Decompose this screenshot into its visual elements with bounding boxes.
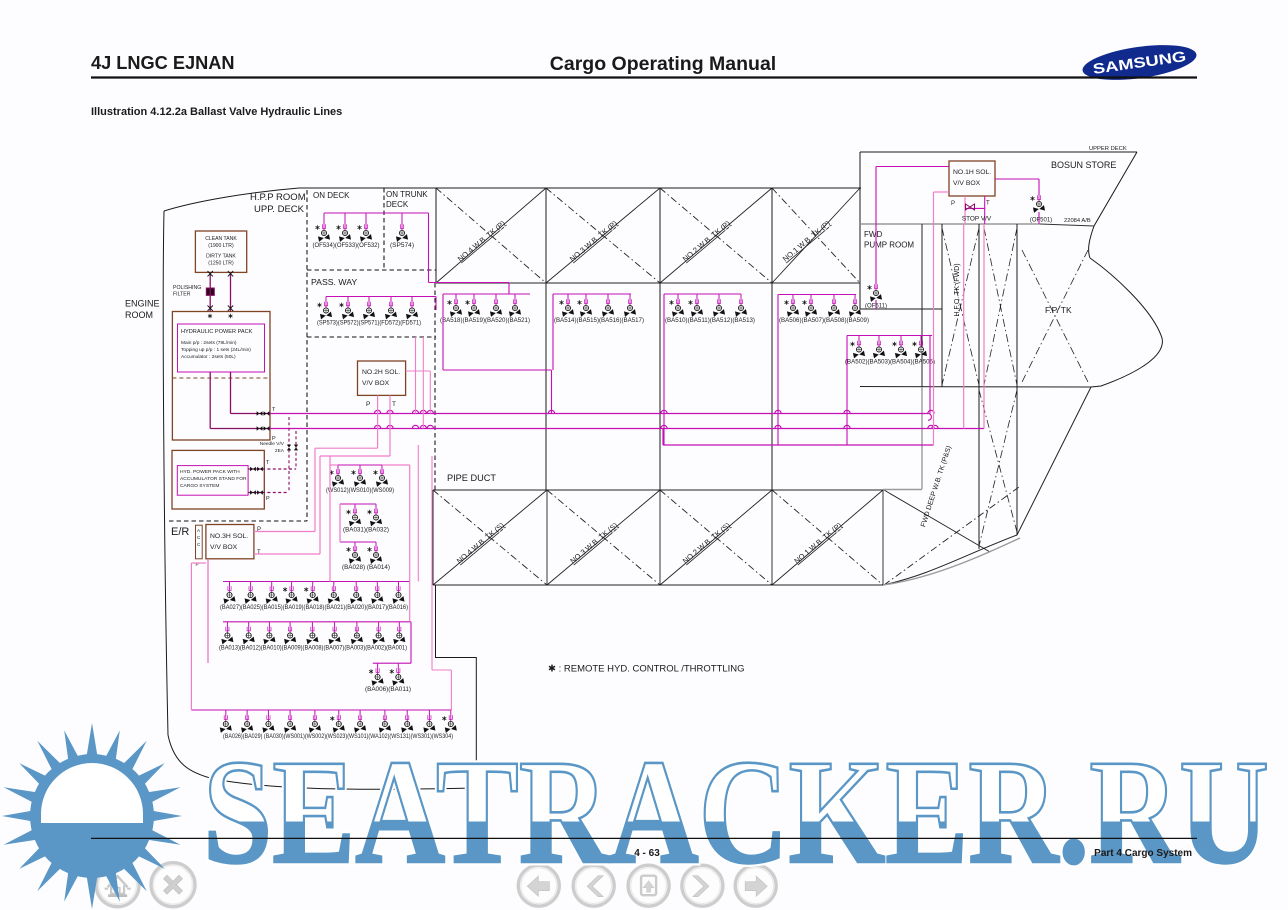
svg-text:22084 A/B: 22084 A/B [1064,218,1091,224]
svg-text:Accumulator : 2sets (50L): Accumulator : 2sets (50L) [181,354,236,360]
svg-text:STOP V/V: STOP V/V [962,216,992,223]
svg-text:DIRTY TANK: DIRTY TANK [206,254,236,260]
svg-text:(BA028) (BA014): (BA028) (BA014) [342,565,390,571]
svg-text:ON TRUNK: ON TRUNK [386,190,428,199]
svg-text:F.P. TK: F.P. TK [1045,305,1072,315]
svg-text:NO.1H SOL.: NO.1H SOL. [953,169,991,176]
svg-text:(WS012)(WS010)(WS009): (WS012)(WS010)(WS009) [326,488,394,494]
svg-text:CLEAN TANK: CLEAN TANK [205,236,237,242]
svg-text:ROOM: ROOM [125,310,153,320]
svg-text:T: T [392,401,396,408]
svg-text:PUMP ROOM: PUMP ROOM [864,241,914,250]
svg-text:(BA510)(BA511)(BA512)(BA513): (BA510)(BA511)(BA512)(BA513) [665,318,755,324]
svg-text:ENGINE: ENGINE [125,299,160,309]
svg-text:CARGO SYSTEM: CARGO SYSTEM [180,483,219,489]
svg-text:(BA502)(BA503)(BA504)(BA505): (BA502)(BA503)(BA504)(BA505) [845,360,935,366]
svg-text:UPP. DECK: UPP. DECK [254,204,305,215]
svg-text:FWD: FWD [864,230,882,239]
svg-text:PASS. WAY: PASS. WAY [311,277,357,287]
svg-text:(SP573)(SP572)(SP571)(FD572)(F: (SP573)(SP572)(SP571)(FD572)(FD571) [317,321,421,327]
svg-text:Illustration 4.12.2a Ballast V: Illustration 4.12.2a Ballast Valve Hydra… [91,106,342,118]
svg-text:BOSUN STORE: BOSUN STORE [1051,160,1116,170]
svg-text:Topping up p/p : 1 sets (24L/m: Topping up p/p : 1 sets (24L/min) [181,347,251,353]
svg-text:(OF501): (OF501) [1030,218,1052,224]
svg-text:(SP574): (SP574) [390,243,414,249]
svg-text:(1900 LTR): (1900 LTR) [208,243,234,249]
svg-text:V/V BOX: V/V BOX [210,544,238,551]
svg-text:P: P [366,401,370,408]
svg-text:V/V BOX: V/V BOX [362,380,390,387]
svg-text:PIPE DUCT: PIPE DUCT [447,473,496,483]
svg-text:UPPER DECK: UPPER DECK [1089,146,1127,152]
svg-text:(BA031)(BA032): (BA031)(BA032) [343,528,389,534]
svg-text:Cargo Operating Manual: Cargo Operating Manual [550,53,776,75]
svg-text:(BA027)(BA025)(BA015)(BA019)(B: (BA027)(BA025)(BA015)(BA019)(BA018)(BA02… [220,605,408,611]
svg-text:T: T [257,550,261,556]
svg-text:ON DECK: ON DECK [313,191,350,200]
svg-text:HYD. POWER PACK WITH: HYD. POWER PACK WITH [180,469,240,475]
svg-text:4J LNGC EJNAN: 4J LNGC EJNAN [91,53,235,73]
svg-text:(1250 LTR): (1250 LTR) [208,261,234,267]
svg-text:(OF534)(OF533)(OF532): (OF534)(OF533)(OF532) [313,243,380,249]
svg-text:✱ : REMOTE HYD. CONTROL /THROT: ✱ : REMOTE HYD. CONTROL /THROTTLING [548,664,745,675]
svg-text:Part 4 Cargo System: Part 4 Cargo System [1094,848,1192,859]
svg-text:Main p/p : 2sets (78L/min): Main p/p : 2sets (78L/min) [181,340,237,346]
svg-text:FILTER: FILTER [173,292,191,298]
svg-text:NO.3H SOL.: NO.3H SOL. [210,533,248,540]
svg-text:(BA506)(BA507)(BA508)(BA509): (BA506)(BA507)(BA508)(BA509) [779,318,869,324]
svg-text:POLISHING: POLISHING [173,285,201,291]
svg-text:(BA013)(BA012)(BA010)(BA009)(B: (BA013)(BA012)(BA010)(BA009)(BA008)(BA00… [219,646,407,652]
svg-text:P: P [266,496,270,502]
svg-text:H.F.O. TK (FWD): H.F.O. TK (FWD) [954,263,961,316]
svg-text:2EA: 2EA [275,448,285,454]
svg-text:DECK: DECK [386,200,409,209]
svg-text:(BA006)(BA011): (BA006)(BA011) [365,687,411,693]
svg-text:E/R: E/R [171,526,189,538]
svg-text:4 - 63: 4 - 63 [634,848,660,859]
svg-text:T: T [986,201,990,207]
svg-text:HYDRAULIC POWER PACK: HYDRAULIC POWER PACK [181,329,253,335]
svg-text:ACCUMULATOR STAND FOR: ACCUMULATOR STAND FOR [180,476,247,482]
svg-text:(BA518)(BA519)(BA520)(BA521): (BA518)(BA519)(BA520)(BA521) [440,318,530,324]
svg-text:(BA514)(BA515)(BA516)(BA517): (BA514)(BA515)(BA516)(BA517) [554,318,644,324]
svg-text:(OF511): (OF511) [865,304,887,310]
svg-text:H.P.P ROOM: H.P.P ROOM [250,192,306,203]
svg-text:NO.2H SOL.: NO.2H SOL. [362,369,400,376]
svg-text:Needle V/V: Needle V/V [260,441,285,447]
svg-text:V/V BOX: V/V BOX [953,180,981,187]
svg-text:P: P [951,201,955,207]
